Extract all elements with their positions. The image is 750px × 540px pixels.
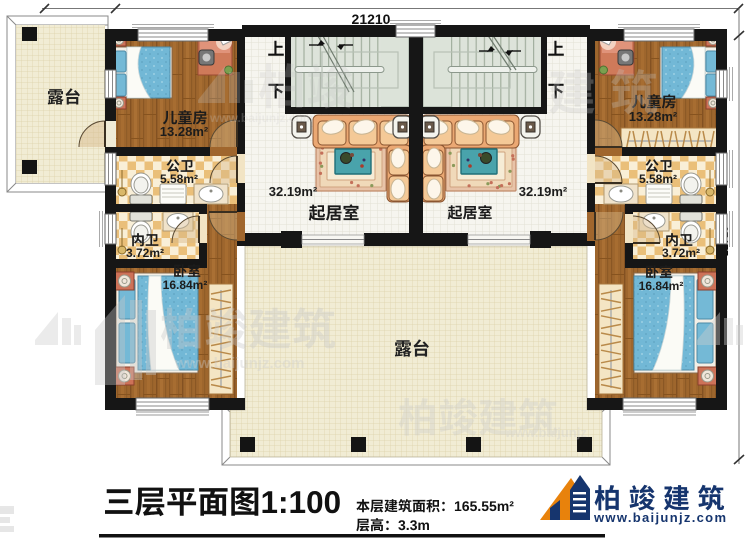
svg-text:32.19m²: 32.19m²	[519, 184, 568, 199]
svg-text:13.28m²: 13.28m²	[160, 124, 209, 139]
svg-text:www.baijunjz.com: www.baijunjz.com	[174, 355, 304, 372]
svg-text:www.baijunjz.com: www.baijunjz.com	[593, 510, 726, 525]
svg-text:32.19m²: 32.19m²	[269, 184, 318, 199]
svg-text:5.58m²: 5.58m²	[639, 172, 677, 186]
svg-text:5.58m²: 5.58m²	[160, 172, 198, 186]
svg-text:3.72m²: 3.72m²	[126, 246, 164, 260]
svg-text:www.baijunjz.com: www.baijunjz.com	[209, 111, 314, 125]
svg-text:3.72m²: 3.72m²	[662, 246, 700, 260]
svg-text:16.84m²: 16.84m²	[163, 278, 208, 292]
svg-text:16.84m²: 16.84m²	[639, 279, 684, 293]
svg-text:21210: 21210	[352, 11, 391, 27]
svg-text:www.baijunjz: www.baijunjz	[504, 425, 587, 440]
